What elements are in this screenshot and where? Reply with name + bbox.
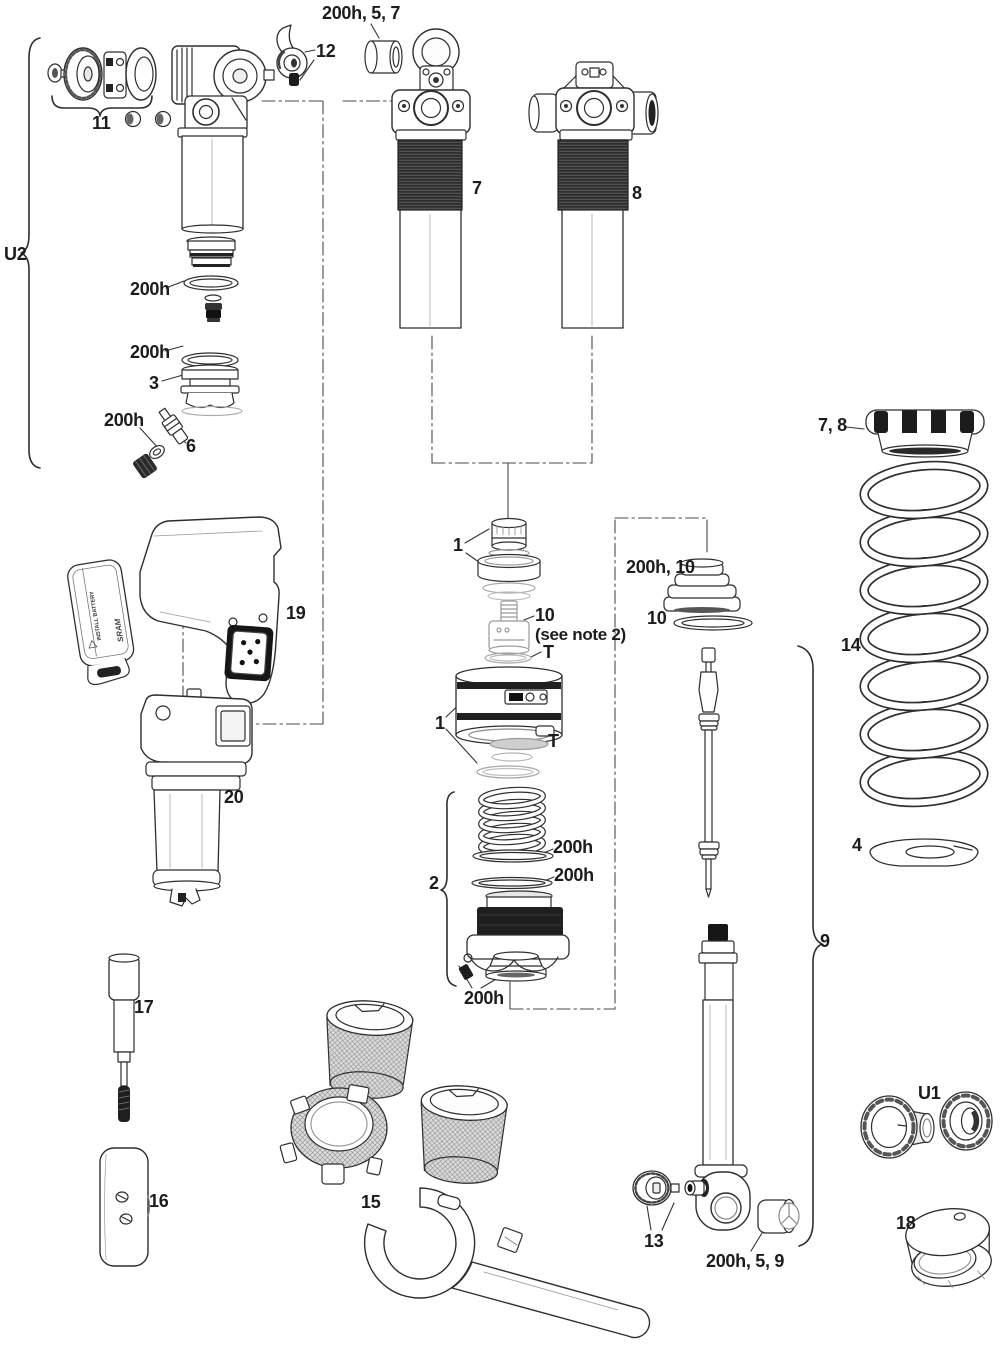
diagram-artwork: INSTALL BATTERY SRAM [0, 0, 1000, 1351]
spring-retainer-4 [870, 839, 978, 866]
grub-screw [289, 73, 299, 86]
eyelet-bushing-upper [365, 41, 402, 73]
callout-tool-16: 16 [149, 1192, 168, 1210]
top-cap-1 [489, 519, 529, 557]
castellated-ring-tool [280, 1084, 387, 1184]
callout-oring-d: 200h [553, 838, 593, 856]
bottom-cone-200h [486, 952, 546, 981]
seal-head-3 [181, 365, 239, 408]
callout-knob-13: 13 [644, 1232, 663, 1250]
callout-t-lower: T [548, 732, 559, 750]
callout-bushing-upper: 200h, 5, 7 [322, 4, 400, 22]
callout-piston-1: 1 [435, 714, 445, 732]
cup-tool-18 [903, 1204, 996, 1293]
air-valve-10 [489, 601, 529, 654]
callout-wrench-15: 15 [361, 1193, 380, 1211]
glide-ring [477, 766, 539, 778]
brace-9 [798, 646, 822, 1246]
valve-6 [156, 406, 190, 446]
callout-body-7: 7 [472, 179, 482, 197]
callout-oring-f: 200h [464, 989, 504, 1007]
callout-oring-a: 200h [130, 280, 170, 298]
rebound-knob-13 [633, 1171, 679, 1205]
air-piston-1 [456, 667, 562, 744]
callout-group-2: 2 [429, 874, 439, 892]
coil-spring-14 [862, 461, 986, 807]
shock-wrench-15 [365, 1188, 650, 1337]
spacer-ring [492, 753, 532, 761]
callout-tool-17: 17 [134, 998, 153, 1016]
callout-seal-head-3: 3 [149, 374, 159, 392]
shaft-clamp-tool-17 [109, 954, 139, 1122]
eyelet-bushing-lower [758, 1200, 799, 1234]
o-ring-200h-e [472, 878, 552, 889]
knurled-sleeve-b [416, 1083, 509, 1186]
callout-collar-7-8: 7, 8 [818, 416, 847, 434]
o-ring-200h-a [184, 276, 238, 290]
callout-air-can-20: 20 [224, 788, 243, 806]
callout-spring-14: 14 [841, 636, 860, 654]
callout-group-u1: U1 [918, 1084, 940, 1102]
tolerance-ring-t-upper-inner [490, 655, 526, 661]
callout-bushing-lower: 200h, 5, 9 [706, 1252, 784, 1270]
bumper-ring-10 [674, 616, 752, 630]
callout-oring-e: 200h [554, 866, 594, 884]
o-ring-200h-d [473, 850, 553, 862]
mounting-bolts [126, 112, 171, 127]
callout-body-8: 8 [632, 184, 642, 202]
exploded-parts-diagram: INSTALL BATTERY SRAM [0, 0, 1000, 1351]
callout-cap-1: 1 [453, 536, 463, 554]
callout-module-19: 19 [286, 604, 305, 622]
callout-cup-18: 18 [896, 1214, 915, 1232]
rebound-needle-rod [699, 648, 719, 897]
callout-group-u2: U2 [4, 245, 26, 263]
preload-collar [866, 410, 984, 457]
brace-2 [441, 792, 456, 986]
controller-module-19 [140, 517, 281, 703]
callout-hardware-11: 11 [92, 114, 110, 132]
callout-group-9: 9 [820, 932, 830, 950]
callout-oring-c: 200h [104, 411, 144, 429]
seal-ring-1 [478, 555, 540, 601]
negative-spring [481, 788, 544, 855]
knob-insert [685, 1181, 704, 1195]
battery: INSTALL BATTERY SRAM [66, 558, 138, 686]
callout-t-upper: T [543, 643, 554, 661]
callout-valve-10: 10 [535, 606, 554, 624]
knurled-sleeve-a [321, 998, 414, 1101]
tolerance-ring-t-lower [490, 739, 548, 750]
callout-bumper: 200h, 10 [626, 558, 695, 576]
callout-note-2: (see note 2) [535, 626, 626, 643]
callout-valve-6: 6 [186, 437, 196, 455]
callout-lever-12: 12 [316, 42, 335, 60]
damper-piston-assembly [458, 891, 569, 981]
remote-actuator-assembly [172, 46, 274, 233]
callout-oring-b: 200h [130, 343, 170, 361]
callout-retainer-4: 4 [852, 836, 862, 854]
sleeve-tool-16 [100, 1148, 150, 1266]
bushing-tool-u1-right [940, 1092, 992, 1150]
shock-body-7 [392, 29, 470, 328]
bushing-tool-u1-left [861, 1096, 934, 1158]
glide-ring-inner [483, 769, 533, 776]
callout-bumper-ring-10: 10 [647, 609, 666, 627]
